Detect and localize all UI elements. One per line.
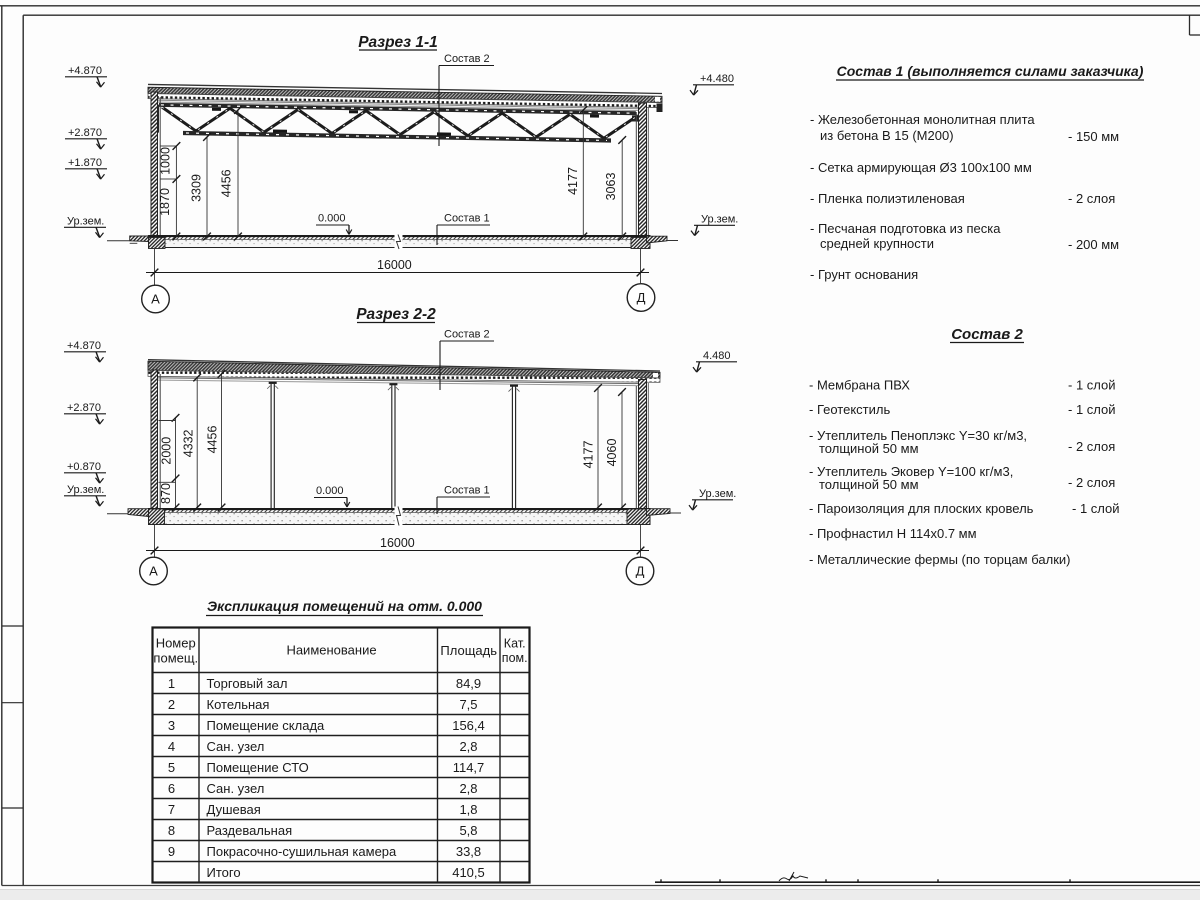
svg-text:2000: 2000 (160, 437, 174, 465)
svg-text:7,5: 7,5 (459, 697, 477, 712)
svg-text:7: 7 (168, 802, 175, 817)
svg-text:+1.870: +1.870 (68, 157, 102, 169)
svg-text:- 200 мм: - 200 мм (1068, 237, 1119, 252)
svg-text:Помещение СТО: Помещение СТО (207, 760, 309, 775)
svg-text:Состав 2: Состав 2 (444, 329, 490, 341)
svg-text:- 2 слоя: - 2 слоя (1068, 475, 1115, 490)
svg-text:Номер: Номер (156, 636, 196, 651)
svg-text:- Геотекстиль: - Геотекстиль (809, 402, 890, 417)
svg-text:410,5: 410,5 (452, 865, 485, 880)
svg-text:3309: 3309 (190, 174, 204, 202)
svg-text:Ур.зем.: Ур.зем. (699, 488, 736, 500)
svg-text:А: А (149, 564, 158, 579)
svg-text:1: 1 (168, 676, 175, 691)
svg-text:+4.870: +4.870 (68, 65, 102, 77)
svg-text:помещ.: помещ. (153, 651, 198, 666)
svg-text:+0.870: +0.870 (67, 461, 101, 473)
svg-text:Итого: Итого (207, 865, 241, 880)
svg-text:2: 2 (168, 697, 175, 712)
svg-text:А: А (151, 292, 160, 307)
svg-text:Ур.зем.: Ур.зем. (67, 216, 104, 228)
svg-text:из бетона В 15 (М200): из бетона В 15 (М200) (820, 128, 954, 143)
svg-text:33,8: 33,8 (456, 844, 481, 859)
svg-text:- Мембрана ПВХ: - Мембрана ПВХ (809, 378, 910, 393)
svg-text:Состав 2: Состав 2 (951, 326, 1023, 343)
svg-text:1000: 1000 (159, 147, 173, 175)
svg-text:Состав 1 (выполняется силами з: Состав 1 (выполняется силами заказчика) (837, 63, 1144, 79)
svg-text:- Пароизоляция для плоских кро: - Пароизоляция для плоских кровель (809, 501, 1034, 516)
svg-text:- Грунт основания: - Грунт основания (810, 267, 918, 282)
svg-text:4456: 4456 (220, 169, 234, 197)
svg-text:- Сетка армирующая Ø3 100х100: - Сетка армирующая Ø3 100х100 мм (810, 160, 1032, 175)
svg-text:Разрез 1-1: Разрез 1-1 (358, 34, 438, 51)
svg-text:+4.870: +4.870 (67, 340, 101, 352)
svg-text:4332: 4332 (182, 429, 196, 457)
svg-text:4.480: 4.480 (703, 350, 731, 362)
svg-text:- Профнастил Н 114х0.7 мм: - Профнастил Н 114х0.7 мм (809, 526, 977, 541)
svg-text:8: 8 (168, 823, 175, 838)
svg-text:Состав 1: Состав 1 (444, 485, 490, 497)
svg-text:Торговый зал: Торговый зал (207, 676, 288, 691)
svg-text:Раздевальная: Раздевальная (207, 823, 293, 838)
svg-text:Покрасочно-сушильная камера: Покрасочно-сушильная камера (207, 844, 398, 859)
svg-text:0.000: 0.000 (316, 485, 344, 497)
svg-text:- Песчаная подготовка из песка: - Песчаная подготовка из песка (810, 221, 1001, 236)
svg-text:Ур.зем.: Ур.зем. (701, 214, 738, 226)
svg-text:4456: 4456 (206, 426, 220, 454)
svg-text:Состав 2: Состав 2 (444, 53, 490, 65)
svg-text:Площадь: Площадь (440, 643, 497, 658)
svg-text:156,4: 156,4 (452, 718, 485, 733)
svg-text:6: 6 (168, 781, 175, 796)
svg-text:Д: Д (637, 290, 646, 305)
svg-text:Котельная: Котельная (207, 697, 270, 712)
svg-text:Наименование: Наименование (286, 643, 376, 658)
svg-text:16000: 16000 (377, 258, 412, 272)
svg-text:- Пленка полиэтиленовая: - Пленка полиэтиленовая (810, 191, 965, 206)
svg-text:- Металлические фермы (по торц: - Металлические фермы (по торцам балки) (809, 552, 1070, 567)
svg-text:3063: 3063 (604, 173, 618, 201)
svg-text:+4.480: +4.480 (700, 73, 734, 85)
svg-text:толщиной 50 мм: толщиной 50 мм (819, 477, 919, 492)
svg-text:- 2 слоя: - 2 слоя (1068, 439, 1115, 454)
svg-text:Сан. узел: Сан. узел (207, 781, 265, 796)
svg-text:Экспликация помещений на отм.: Экспликация помещений на отм. 0.000 (207, 598, 482, 614)
svg-text:0.000: 0.000 (318, 213, 346, 225)
svg-text:+2.870: +2.870 (68, 127, 102, 139)
svg-text:4177: 4177 (566, 167, 580, 195)
svg-text:1,8: 1,8 (459, 802, 477, 817)
svg-text:114,7: 114,7 (453, 760, 485, 775)
svg-text:5: 5 (168, 760, 175, 775)
svg-text:2,8: 2,8 (459, 781, 477, 796)
svg-text:870: 870 (159, 483, 173, 504)
svg-text:5,8: 5,8 (459, 823, 477, 838)
svg-text:- 1 слой: - 1 слой (1068, 378, 1116, 393)
svg-text:Д: Д (636, 564, 645, 579)
svg-text:пом.: пом. (502, 651, 528, 665)
svg-text:- Железобетонная монолитная п: - Железобетонная монолитная плита (810, 112, 1035, 127)
svg-text:Состав 1: Состав 1 (444, 213, 490, 225)
svg-text:3: 3 (168, 718, 175, 733)
svg-text:4: 4 (168, 739, 175, 754)
svg-text:Сан. узел: Сан. узел (207, 739, 265, 754)
svg-text:Душевая: Душевая (207, 802, 261, 817)
svg-text:16000: 16000 (380, 536, 415, 550)
svg-text:- 150 мм: - 150 мм (1068, 129, 1119, 144)
svg-text:толщиной 50 мм: толщиной 50 мм (819, 441, 919, 456)
svg-text:- 1 слой: - 1 слой (1072, 501, 1120, 516)
svg-text:Разрез 2-2: Разрез 2-2 (356, 306, 436, 323)
svg-text:- 1 слой: - 1 слой (1068, 402, 1116, 417)
svg-text:Кат.: Кат. (504, 637, 526, 651)
svg-text:4060: 4060 (605, 439, 619, 467)
svg-text:84,9: 84,9 (456, 676, 481, 691)
svg-text:Помещение склада: Помещение склада (207, 718, 326, 733)
svg-text:Ур.зем.: Ур.зем. (67, 484, 104, 496)
svg-text:+2.870: +2.870 (67, 402, 101, 414)
svg-text:средней крупности: средней крупности (820, 236, 934, 251)
svg-text:1870: 1870 (158, 188, 172, 216)
svg-text:4177: 4177 (582, 441, 596, 469)
svg-text:- 2 слоя: - 2 слоя (1068, 191, 1115, 206)
svg-text:2,8: 2,8 (459, 739, 477, 754)
svg-text:9: 9 (168, 844, 175, 859)
